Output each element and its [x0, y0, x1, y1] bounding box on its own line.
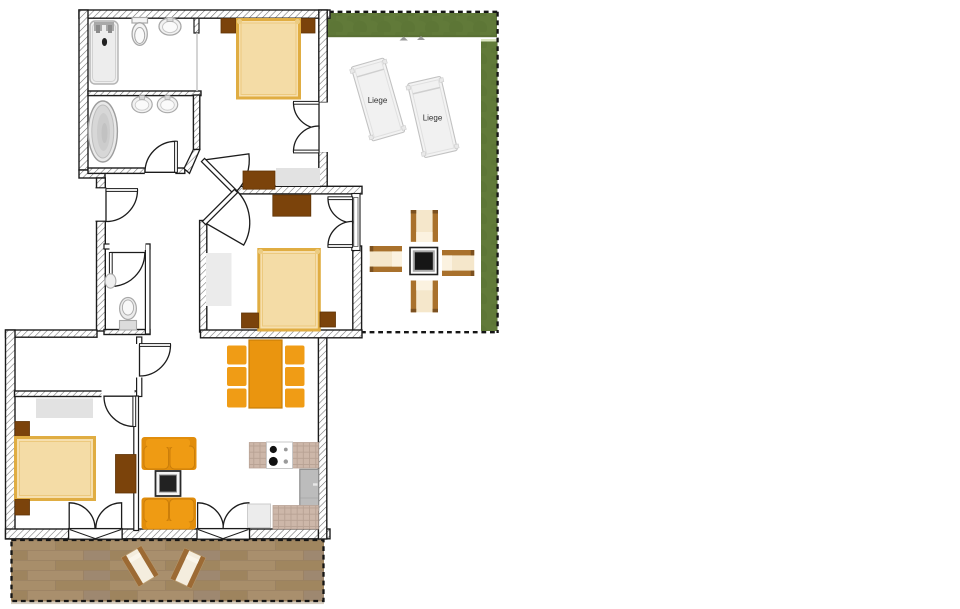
svg-text:Liege: Liege [368, 96, 388, 105]
svg-text:Liege: Liege [423, 114, 443, 123]
